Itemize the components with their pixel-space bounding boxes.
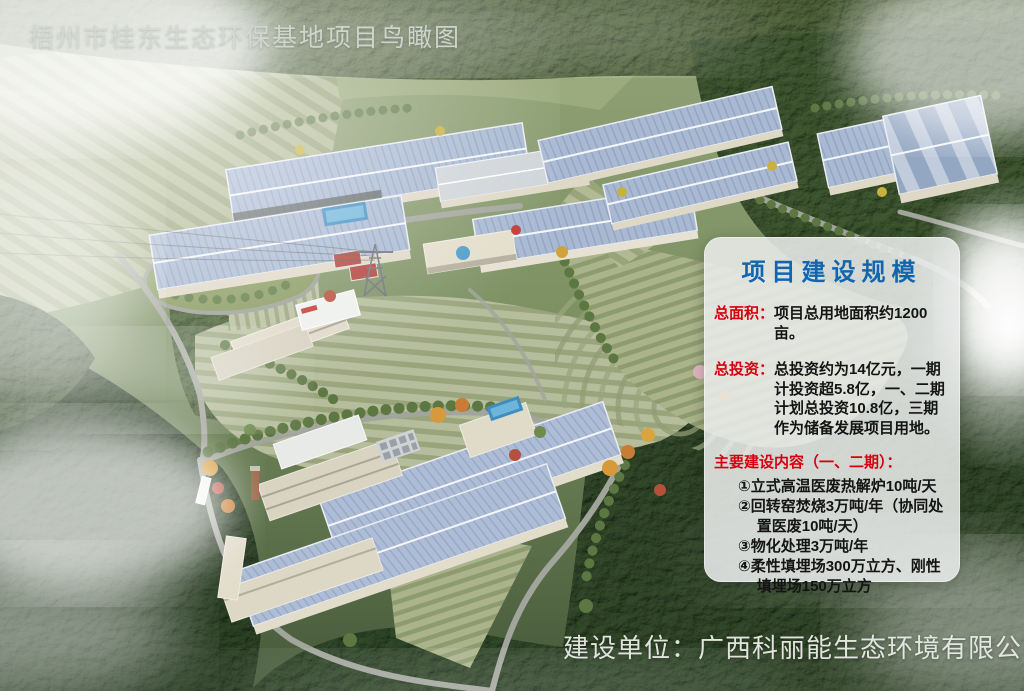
construction-item: ④柔性填埋场300万立方、刚性填埋场150万立方 xyxy=(738,557,949,597)
total-area-label: 总面积： xyxy=(714,304,774,324)
total-area-row: 总面积： 项目总用地面积约1200亩。 xyxy=(714,304,949,343)
page-title: 梧州市桂东生态环保基地项目鸟瞰图 xyxy=(29,18,461,54)
construction-item: ③物化处理3万吨/年 xyxy=(738,537,949,557)
total-area-value: 项目总用地面积约1200亩。 xyxy=(774,304,949,343)
chimney xyxy=(251,468,259,500)
main-content-heading: 主要建设内容（一、二期）： xyxy=(714,453,949,472)
info-panel: 项目建设规模 总面积： 项目总用地面积约1200亩。 总投资： 总投资约为14亿… xyxy=(704,237,960,582)
aerial-rendering-page: 梧州市桂东生态环保基地项目鸟瞰图 项目建设规模 总面积： 项目总用地面积约120… xyxy=(0,0,1024,691)
total-investment-label: 总投资： xyxy=(714,360,774,380)
construction-items-list: ①立式高温医废热解炉10吨/天 ②回转窑焚烧3万吨/年（协同处置医废10吨/天）… xyxy=(714,477,949,597)
construction-item: ①立式高温医废热解炉10吨/天 xyxy=(738,477,949,497)
builder-caption: 建设单位：广西科丽能生态环境有限公司 xyxy=(563,628,1013,665)
total-investment-value: 总投资约为14亿元，一期计投资超5.8亿，一、二期计划总投资10.8亿，三期作为… xyxy=(774,360,949,438)
total-investment-row: 总投资： 总投资约为14亿元，一期计投资超5.8亿，一、二期计划总投资10.8亿… xyxy=(714,360,949,438)
construction-item: ②回转窑焚烧3万吨/年（协同处置医废10吨/天） xyxy=(738,497,949,537)
panel-title: 项目建设规模 xyxy=(714,252,949,287)
